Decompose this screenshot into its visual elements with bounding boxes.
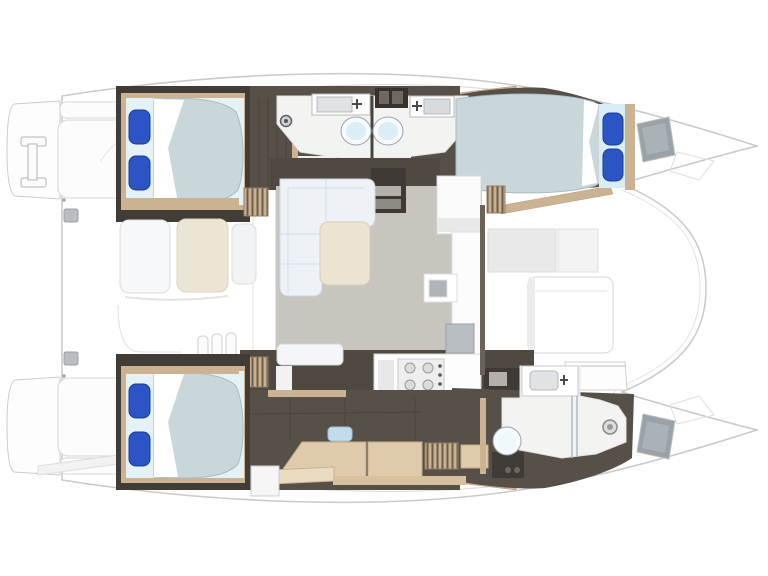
foredeck-recess-left	[488, 229, 556, 272]
door-hinge	[64, 352, 78, 365]
step-wood	[272, 467, 334, 484]
louver-locker	[425, 443, 458, 469]
saloon-table	[320, 222, 370, 285]
louver-locker	[487, 186, 505, 213]
headboard	[625, 104, 635, 190]
pillow	[129, 384, 150, 418]
companionway-steps-port	[371, 168, 406, 213]
floor-plan-canvas	[0, 0, 768, 576]
louver-locker	[244, 188, 268, 216]
entry-step-white	[251, 466, 279, 496]
galley-upper-cabinet-shelf	[437, 218, 481, 232]
pillow	[603, 149, 623, 181]
overhead-hatch-icon	[375, 88, 408, 108]
saloon-doorpost	[276, 366, 292, 392]
plinth-wood	[333, 476, 466, 485]
toilet	[492, 427, 524, 478]
starboard-aft-cabin	[116, 354, 250, 490]
foredeck-island	[528, 277, 613, 353]
shower-drain-left	[281, 116, 292, 127]
saloon-bench	[277, 344, 343, 365]
porthole-ring	[603, 420, 617, 434]
port-forward-berth	[456, 94, 635, 193]
hull-trim-wall	[480, 398, 486, 474]
vanity-sink	[522, 366, 578, 396]
corridor-top-trim	[268, 390, 346, 397]
cabin-head-trim	[121, 368, 239, 374]
pillow	[603, 113, 623, 145]
port-aft-cabin	[116, 86, 250, 222]
stove	[398, 359, 444, 394]
cabin-foot-trim	[121, 198, 239, 206]
cockpit-cushion-white	[120, 220, 170, 293]
bow-hatch-starboard	[637, 414, 675, 459]
swim-platform-starboard	[7, 377, 60, 475]
pillow	[129, 110, 150, 144]
foredeck-recess-right	[558, 229, 598, 272]
toilet-aft	[341, 117, 371, 145]
dishwasher	[446, 324, 474, 353]
pillow	[129, 432, 150, 466]
galley-sink	[429, 280, 447, 297]
boat-floor-plan	[0, 0, 768, 576]
saloon-forward-wall	[480, 205, 485, 375]
vanity-sink-left	[312, 94, 370, 115]
vanity-sink-right	[410, 96, 454, 117]
bow-hatch-port	[637, 117, 675, 162]
desk-wood-2	[368, 442, 422, 477]
pillow	[129, 156, 150, 190]
stool-cushion	[328, 427, 352, 441]
deck-fitting-dot	[62, 374, 65, 377]
deck-fitting-dot	[62, 198, 65, 201]
cockpit-cushion-cream	[177, 219, 228, 292]
door-hinge	[64, 209, 78, 222]
cockpit-cushion-side	[232, 224, 256, 284]
toilet-fwd	[373, 117, 403, 145]
